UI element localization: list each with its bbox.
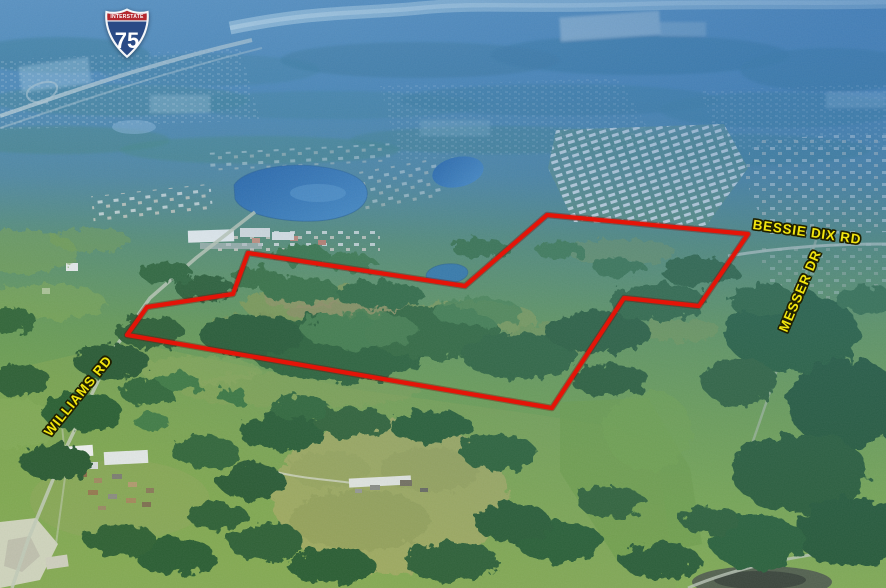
aerial-photo-canvas: INTERSTATE 75 BESSIE DIX RD MESSER DR WI…	[0, 0, 886, 588]
shield-header-text: INTERSTATE	[110, 14, 144, 20]
shield-route-number: 75	[115, 28, 139, 53]
grain-dark	[0, 0, 886, 588]
interstate-75-shield: INTERSTATE 75	[105, 7, 149, 59]
aerial-photo	[0, 0, 886, 588]
interstate-shield-icon: INTERSTATE 75	[105, 7, 149, 59]
